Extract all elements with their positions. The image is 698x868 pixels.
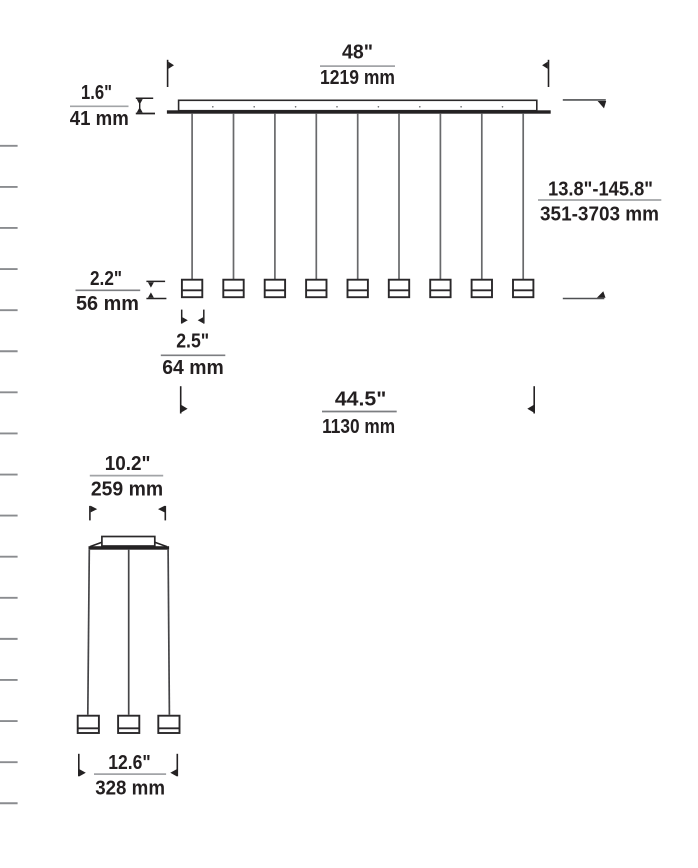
svg-text:2.2": 2.2" (90, 267, 122, 290)
svg-text:10.2": 10.2" (105, 452, 151, 475)
svg-text:351-3703 mm: 351-3703 mm (540, 202, 659, 225)
svg-text:48": 48" (342, 41, 373, 64)
svg-text:1219 mm: 1219 mm (320, 66, 395, 89)
svg-text:2.5": 2.5" (176, 329, 209, 352)
svg-text:12.6": 12.6" (108, 751, 151, 774)
svg-text:1130 mm: 1130 mm (322, 415, 395, 438)
svg-text:56 mm: 56 mm (76, 292, 139, 315)
svg-text:328 mm: 328 mm (95, 777, 165, 800)
svg-text:13.8"-145.8": 13.8"-145.8" (548, 177, 653, 200)
svg-text:41 mm: 41 mm (70, 107, 129, 130)
svg-text:1.6": 1.6" (81, 81, 112, 104)
svg-text:64 mm: 64 mm (162, 356, 224, 379)
svg-text:44.5": 44.5" (335, 388, 387, 411)
svg-text:259 mm: 259 mm (91, 477, 163, 500)
